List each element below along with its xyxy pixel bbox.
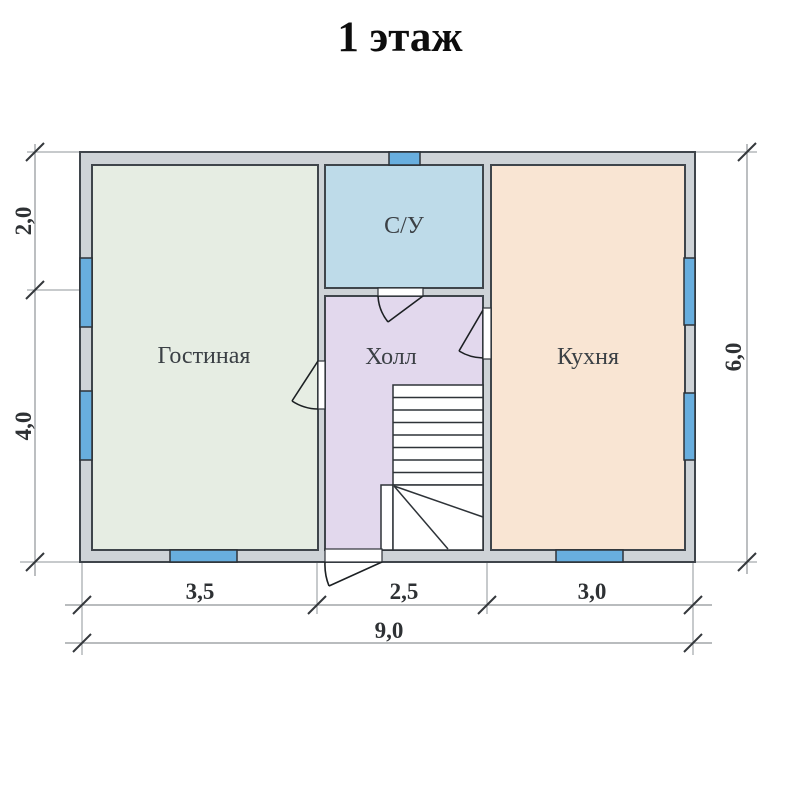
dim-label-right: 6,0: [721, 343, 746, 372]
door-opening-living: [318, 361, 325, 409]
floor-plan-figure: 1 этаж: [0, 0, 800, 800]
window-kitchen-bottom: [556, 550, 623, 562]
door-swing-entrance: [325, 562, 382, 586]
window-right-bottom: [684, 393, 695, 460]
stairs-winder: [393, 485, 483, 550]
page-title: 1 этаж: [337, 14, 463, 61]
window-bathroom-top: [389, 152, 420, 165]
floor-plan-page: 1 этаж: [0, 0, 800, 800]
door-opening-bathroom: [378, 288, 423, 296]
dim-label-bottom-right: 3,0: [578, 579, 607, 604]
room-label-living: Гостиная: [158, 343, 251, 369]
window-left-top: [80, 258, 92, 327]
door-opening-entrance: [325, 549, 382, 562]
window-living-bottom: [170, 550, 237, 562]
dim-label-bottom-total: 9,0: [375, 618, 404, 643]
stairs-landing-strip: [381, 485, 393, 550]
door-opening-kitchen: [483, 308, 491, 359]
dim-label-bottom-middle: 2,5: [390, 579, 419, 604]
window-left-bottom: [80, 391, 92, 460]
dim-label-bottom-left: 3,5: [186, 579, 215, 604]
room-label-kitchen: Кухня: [557, 344, 619, 370]
dim-label-left-bottom: 4,0: [11, 412, 36, 441]
room-label-bathroom: С/У: [384, 213, 424, 239]
room-label-hall: Холл: [365, 344, 416, 370]
dim-label-left-top: 2,0: [11, 207, 36, 236]
window-right-top: [684, 258, 695, 325]
